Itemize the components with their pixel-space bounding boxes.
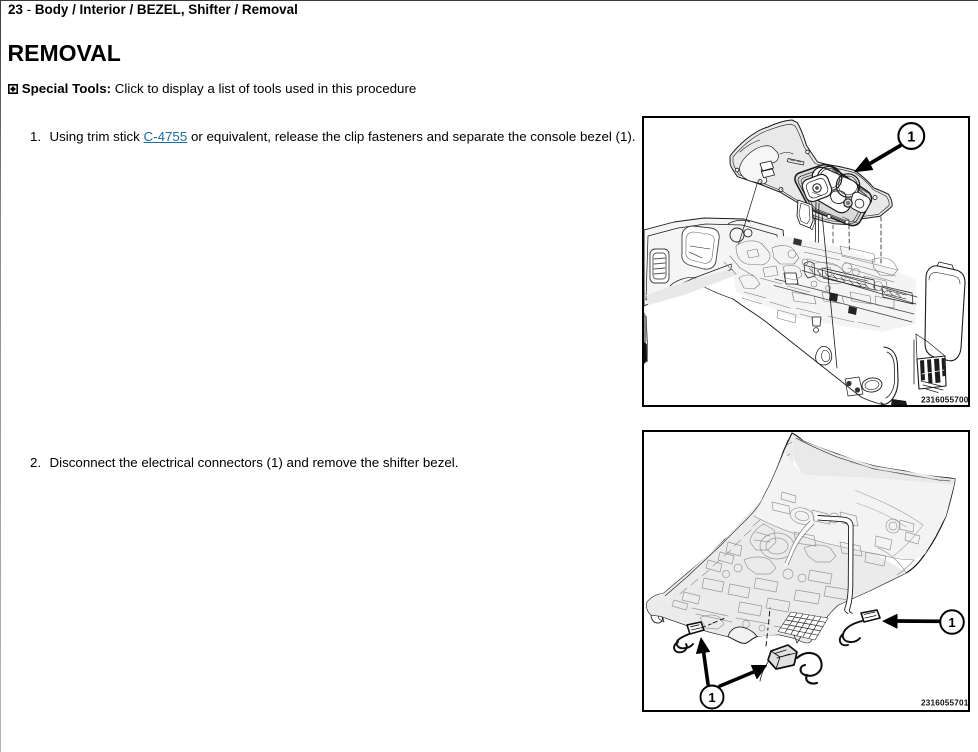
svg-text:2316055700: 2316055700 bbox=[921, 396, 968, 405]
svg-text:1: 1 bbox=[708, 690, 715, 705]
svg-text:2316055701: 2316055701 bbox=[921, 699, 968, 708]
svg-text:1: 1 bbox=[907, 129, 915, 145]
svg-text:1: 1 bbox=[948, 615, 955, 630]
